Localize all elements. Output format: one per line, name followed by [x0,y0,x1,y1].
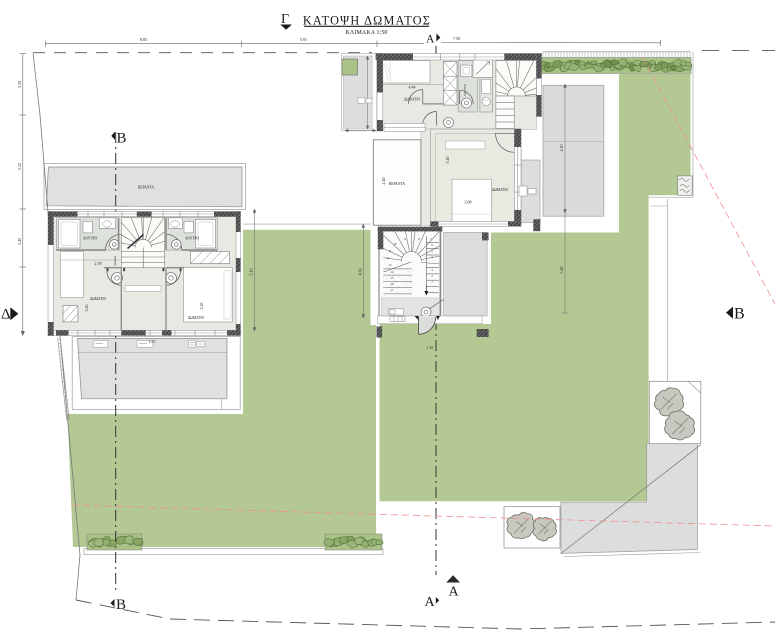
svg-text:14: 14 [391,270,395,274]
svg-text:16: 16 [391,282,395,286]
svg-text:3.08: 3.08 [465,200,472,205]
svg-text:5.91: 5.91 [300,37,307,42]
svg-text:3.40: 3.40 [445,157,450,164]
svg-text:12: 12 [387,256,391,260]
svg-text:8.85: 8.85 [140,37,147,42]
svg-text:ΚΑΤΟΨΗ ΔΩΜΑΤΟΣ: ΚΑΤΟΨΗ ΔΩΜΑΤΟΣ [303,14,431,28]
svg-text:ΔΩΜΑΤΙΟ: ΔΩΜΑΤΙΟ [404,98,421,102]
svg-text:A: A [449,585,460,600]
svg-text:B: B [116,597,126,613]
svg-text:ΛΟΥΤΡΟ: ΛΟΥΤΡΟ [83,237,98,241]
svg-text:4.50: 4.50 [358,269,363,276]
svg-text:3.45: 3.45 [199,303,204,310]
svg-text:ΚΛΙΜΑΚΑ 1:50: ΚΛΙΜΑΚΑ 1:50 [345,30,387,36]
svg-text:3.30: 3.30 [17,81,22,88]
svg-text:B: B [117,131,127,147]
svg-text:ΔΩΜΑΤΙΟ: ΔΩΜΑΤΙΟ [188,316,205,320]
svg-text:3.45: 3.45 [84,305,89,312]
svg-text:5.40: 5.40 [559,267,564,274]
svg-text:11: 11 [389,249,392,253]
svg-text:1.67: 1.67 [149,339,156,344]
svg-text:3.45: 3.45 [17,238,22,245]
svg-text:ΛΟΥΤΡΟ: ΛΟΥΤΡΟ [463,83,467,96]
svg-text:A: A [425,595,436,610]
svg-text:A: A [426,34,435,46]
svg-text:ΒΕΡΑΝΤΑ: ΒΕΡΑΝΤΑ [389,182,405,186]
svg-text:5.10: 5.10 [249,269,254,276]
svg-text:ΔΩΜΑΤΙΟ: ΔΩΜΑΤΙΟ [492,188,509,192]
svg-text:ΛΟΥΤΡΟ: ΛΟΥΤΡΟ [185,237,200,241]
svg-text:ΔΩΜΑΤΙΟ: ΔΩΜΑΤΙΟ [90,297,107,301]
svg-text:ΒΕΡΑΝΤΑ: ΒΕΡΑΝΤΑ [138,186,154,190]
svg-text:4.10: 4.10 [559,145,564,152]
svg-text:7.50: 7.50 [453,36,460,41]
svg-text:4.44: 4.44 [409,85,416,90]
svg-text:2.40: 2.40 [381,178,386,185]
svg-text:13: 13 [389,263,393,267]
svg-text:5.12: 5.12 [17,163,22,170]
svg-text:10: 10 [394,242,398,246]
svg-text:17: 17 [391,288,395,292]
svg-text:B: B [734,306,745,323]
svg-text:Δ: Δ [1,307,11,323]
svg-text:15: 15 [391,276,395,280]
svg-text:1.10: 1.10 [427,346,433,350]
svg-text:2.78: 2.78 [95,261,102,266]
